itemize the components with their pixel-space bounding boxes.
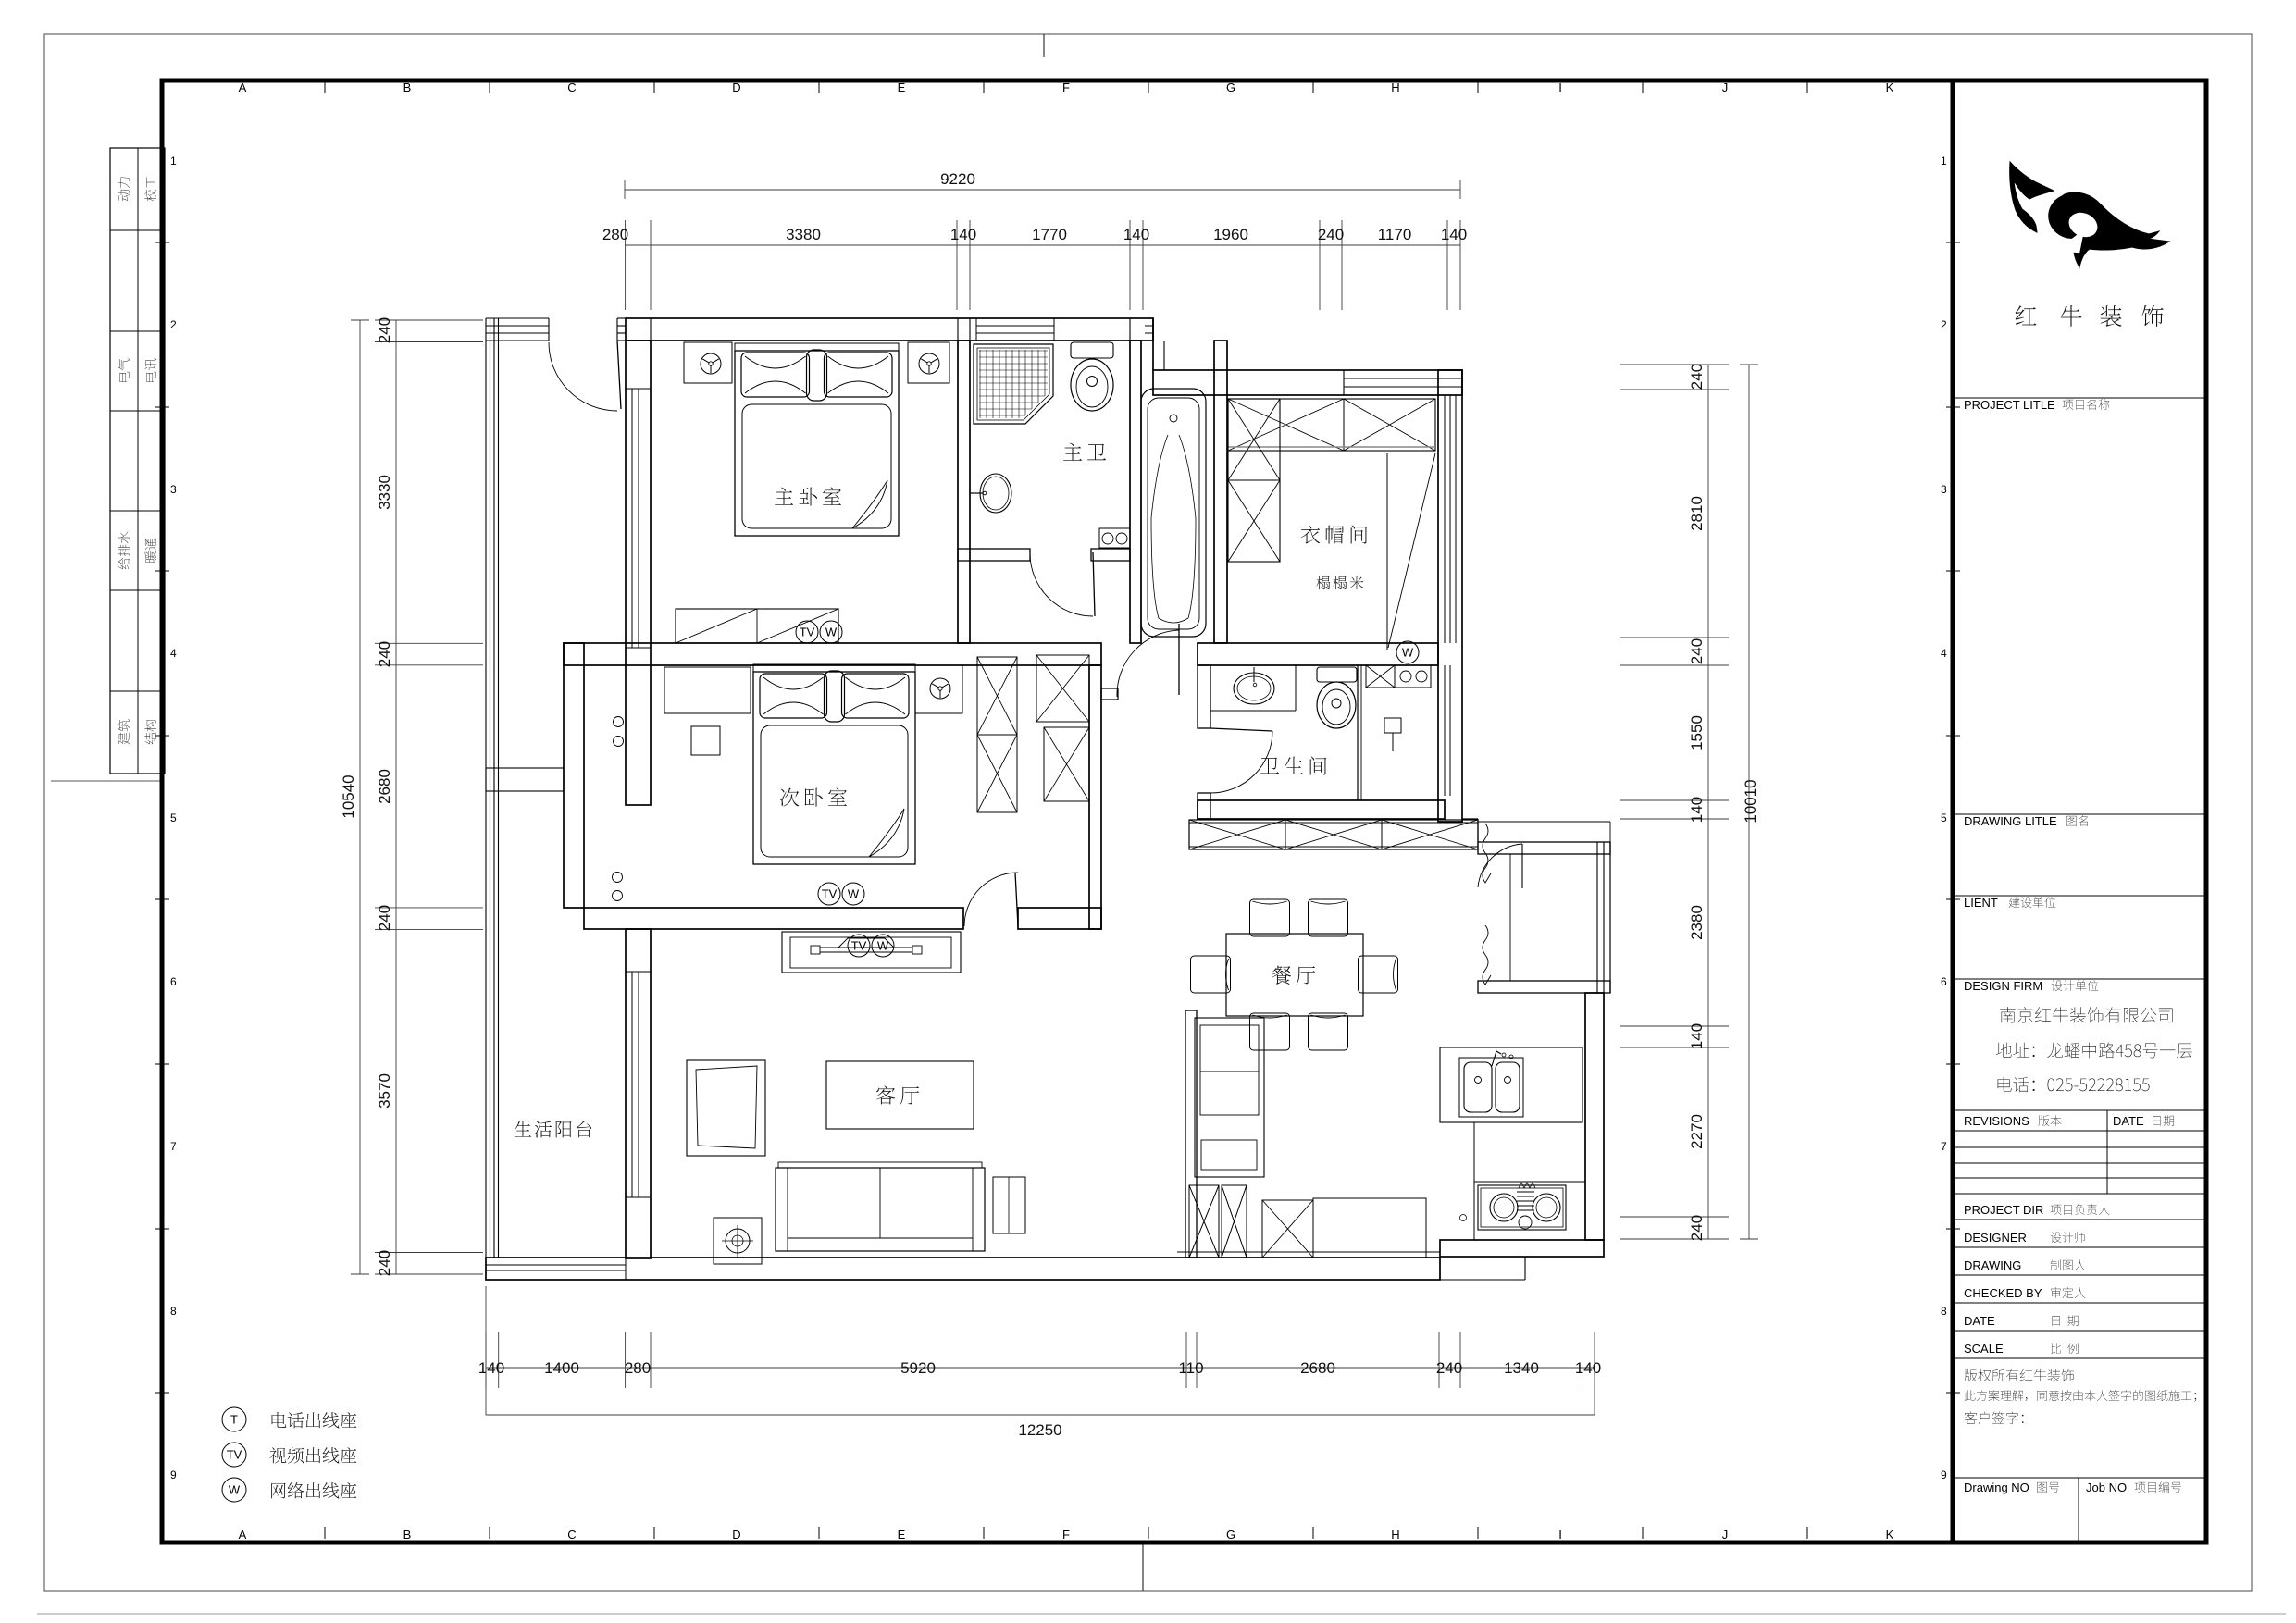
svg-text:T: T [230,1413,238,1427]
svg-text:C: C [567,81,576,94]
svg-text:CHECKED BY: CHECKED BY [1964,1286,2042,1300]
svg-text:240: 240 [376,905,393,931]
svg-text:140: 140 [1688,797,1706,823]
svg-text:240: 240 [1436,1359,1462,1377]
svg-text:TV: TV [851,939,867,953]
svg-text:A: A [239,81,247,94]
svg-text:A: A [239,1528,247,1542]
svg-text:C: C [567,1528,576,1542]
svg-text:DATE: DATE [1964,1314,1995,1328]
svg-text:W: W [877,939,889,953]
svg-text:H: H [1391,81,1399,94]
svg-text:W: W [229,1483,241,1497]
svg-text:3: 3 [170,483,177,496]
svg-text:3380: 3380 [786,226,821,243]
svg-text:140: 140 [1688,1023,1706,1049]
svg-text:W: W [1402,646,1414,660]
svg-text:1960: 1960 [1213,226,1248,243]
svg-text:9: 9 [170,1468,177,1481]
svg-text:1770: 1770 [1032,226,1067,243]
svg-text:140: 140 [478,1359,504,1377]
svg-text:240: 240 [376,317,393,343]
svg-text:1340: 1340 [1504,1359,1539,1377]
svg-text:SCALE: SCALE [1964,1342,2004,1356]
svg-text:K: K [1886,81,1894,94]
svg-text:280: 280 [602,226,628,243]
svg-text:140: 140 [1441,226,1467,243]
svg-text:DESIGNER: DESIGNER [1964,1231,2027,1245]
svg-text:2380: 2380 [1688,905,1706,940]
svg-text:1: 1 [170,155,177,167]
svg-text:G: G [1226,81,1235,94]
svg-text:Job NO: Job NO [2086,1481,2127,1494]
svg-text:B: B [403,81,412,94]
svg-text:1170: 1170 [1378,226,1412,243]
svg-text:110: 110 [1178,1359,1203,1377]
svg-text:140: 140 [950,226,976,243]
svg-text:1550: 1550 [1688,715,1706,750]
svg-text:8: 8 [170,1305,177,1318]
svg-text:W: W [825,626,838,639]
svg-text:DRAWING: DRAWING [1964,1258,2021,1272]
svg-text:G: G [1226,1528,1235,1542]
svg-text:4: 4 [1941,647,1947,660]
svg-text:8: 8 [1941,1305,1947,1318]
svg-text:3570: 3570 [376,1073,393,1109]
svg-text:2680: 2680 [1300,1359,1335,1377]
svg-text:9220: 9220 [940,170,975,188]
svg-text:9: 9 [1941,1468,1947,1481]
svg-text:J: J [1722,81,1729,94]
svg-text:F: F [1062,1528,1070,1542]
svg-text:PROJECT LITLE: PROJECT LITLE [1964,398,2055,412]
svg-text:E: E [898,81,906,94]
svg-text:2: 2 [1941,318,1947,331]
svg-text:DATE: DATE [2113,1114,2144,1128]
svg-text:2810: 2810 [1688,496,1706,531]
svg-text:DRAWING LITLE: DRAWING LITLE [1964,814,2057,828]
svg-text:E: E [898,1528,906,1542]
svg-text:3: 3 [1941,483,1947,496]
svg-text:2270: 2270 [1688,1114,1706,1149]
svg-text:12250: 12250 [1018,1421,1061,1439]
svg-text:1400: 1400 [544,1359,579,1377]
svg-text:240: 240 [1688,364,1706,390]
svg-text:2680: 2680 [376,769,393,804]
svg-text:J: J [1722,1528,1729,1542]
svg-text:F: F [1062,81,1070,94]
svg-text:5: 5 [1941,811,1947,824]
svg-text:140: 140 [1575,1359,1601,1377]
svg-text:4: 4 [170,647,177,660]
svg-text:3330: 3330 [376,475,393,510]
svg-text:5: 5 [170,811,177,824]
svg-text:240: 240 [1688,1215,1706,1241]
svg-text:PROJECT DIR: PROJECT DIR [1964,1203,2043,1217]
svg-text:Drawing NO: Drawing NO [1964,1481,2029,1494]
svg-text:D: D [732,1528,740,1542]
svg-text:REVISIONS: REVISIONS [1964,1114,2029,1128]
svg-text:2: 2 [170,318,177,331]
svg-text:TV: TV [800,626,815,639]
svg-text:7: 7 [1941,1140,1947,1153]
svg-text:240: 240 [1688,638,1706,664]
svg-text:6: 6 [170,975,177,988]
svg-text:240: 240 [376,641,393,667]
svg-text:TV: TV [822,887,838,901]
svg-text:7: 7 [170,1140,177,1153]
svg-text:I: I [1558,1528,1562,1542]
svg-text:B: B [403,1528,412,1542]
svg-text:DESIGN FIRM: DESIGN FIRM [1964,979,2042,993]
svg-text:D: D [732,81,740,94]
svg-text:1: 1 [1941,155,1947,167]
svg-text:5920: 5920 [900,1359,936,1377]
svg-text:W: W [848,887,860,901]
svg-text:240: 240 [376,1250,393,1276]
svg-text:K: K [1886,1528,1894,1542]
svg-text:TV: TV [227,1448,242,1462]
svg-text:280: 280 [625,1359,651,1377]
svg-text:10540: 10540 [340,774,357,818]
svg-text:H: H [1391,1528,1399,1542]
svg-text:10010: 10010 [1742,779,1759,823]
svg-text:I: I [1558,81,1562,94]
svg-text:140: 140 [1123,226,1149,243]
svg-text:240: 240 [1318,226,1344,243]
svg-text:LIENT: LIENT [1964,896,1998,910]
svg-text:6: 6 [1941,975,1947,988]
